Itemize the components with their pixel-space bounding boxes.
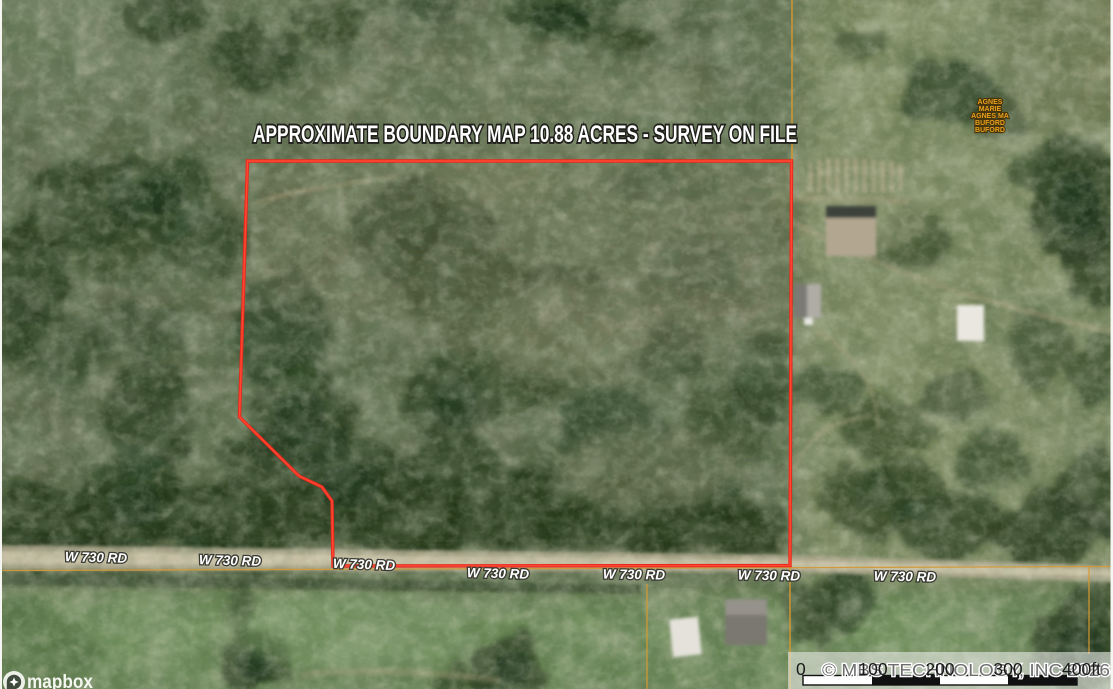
svg-text:mapbox: mapbox — [27, 672, 93, 689]
svg-text:200: 200 — [925, 659, 954, 679]
svg-text:AGNES: AGNES — [978, 99, 1003, 106]
svg-text:W 730 RD: W 730 RD — [738, 567, 801, 583]
svg-text:W 730 RD: W 730 RD — [65, 549, 128, 566]
svg-text:APPROXIMATE BOUNDARY MAP 10.88: APPROXIMATE BOUNDARY MAP 10.88 ACRES - S… — [253, 121, 797, 148]
svg-text:100: 100 — [858, 659, 887, 679]
svg-text:400ft: 400ft — [1062, 659, 1101, 679]
svg-text:BUFORD: BUFORD — [975, 120, 1005, 127]
svg-text:W 730 RD: W 730 RD — [199, 552, 262, 569]
svg-text:BUFORD: BUFORD — [975, 127, 1005, 134]
svg-text:W 730 RD: W 730 RD — [603, 566, 666, 582]
svg-text:300: 300 — [993, 659, 1022, 679]
svg-text:W 730 RD: W 730 RD — [467, 565, 530, 582]
svg-text:MARIE: MARIE — [979, 106, 1002, 113]
svg-text:W 730 RD: W 730 RD — [874, 568, 937, 584]
svg-text:AGNES MA: AGNES MA — [971, 113, 1009, 120]
svg-text:W 730 RD: W 730 RD — [333, 556, 396, 573]
svg-text:0: 0 — [796, 659, 806, 679]
